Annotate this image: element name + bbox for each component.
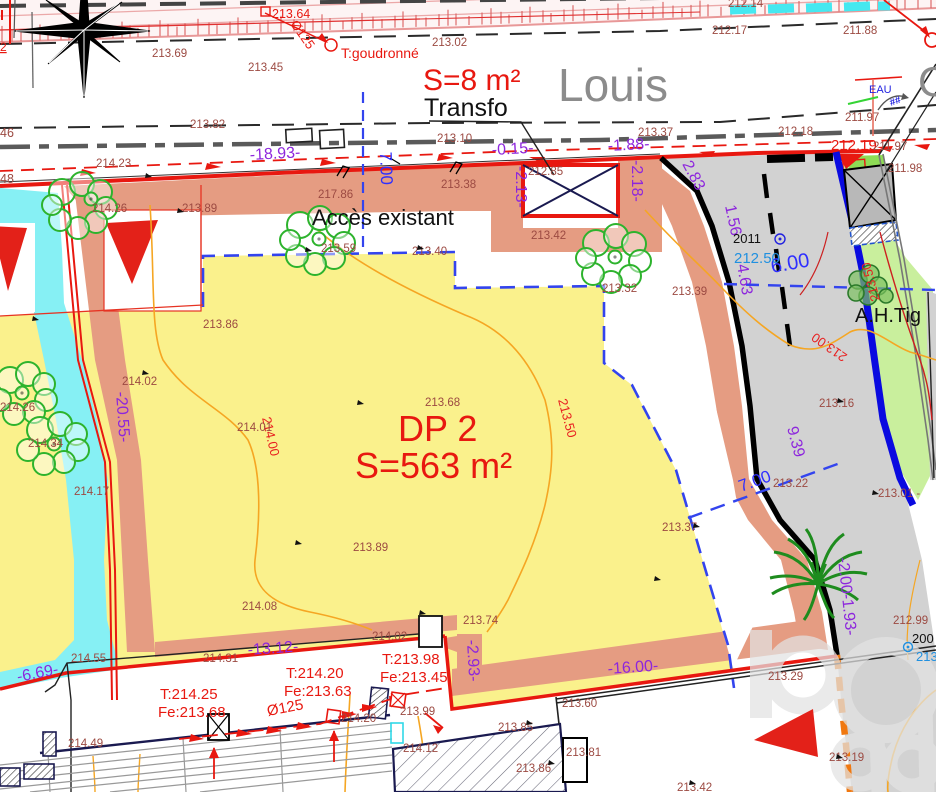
svg-text:212.14: 212.14 bbox=[728, 0, 764, 10]
svg-text:200: 200 bbox=[912, 631, 934, 646]
svg-text:T:214.25: T:214.25 bbox=[160, 686, 218, 703]
svg-text:213.68: 213.68 bbox=[425, 397, 460, 409]
svg-text:214.02: 214.02 bbox=[122, 376, 157, 388]
svg-text:211.97: 211.97 bbox=[873, 141, 907, 153]
svg-text:213.64: 213.64 bbox=[272, 7, 310, 21]
svg-text:213.86: 213.86 bbox=[516, 763, 551, 775]
svg-text:213.60: 213.60 bbox=[562, 698, 597, 710]
svg-text:48: 48 bbox=[0, 172, 14, 186]
svg-text:214.17: 214.17 bbox=[74, 486, 109, 498]
svg-text:Fe:213.68: Fe:213.68 bbox=[158, 704, 226, 721]
svg-text:214.20: 214.20 bbox=[341, 713, 376, 725]
svg-text:S=8 m²: S=8 m² bbox=[423, 64, 521, 97]
svg-text:213.40: 213.40 bbox=[412, 246, 447, 258]
svg-text:-2.93-: -2.93- bbox=[463, 639, 482, 682]
svg-text:213.81: 213.81 bbox=[566, 747, 601, 759]
svg-text:212.17: 212.17 bbox=[712, 25, 747, 37]
svg-text:213.32: 213.32 bbox=[602, 283, 637, 295]
svg-text:T:goudronné: T:goudronné bbox=[341, 45, 419, 61]
svg-text:212.19: 212.19 bbox=[831, 137, 877, 154]
svg-text:7.00: 7.00 bbox=[376, 151, 396, 185]
svg-text:213.29: 213.29 bbox=[768, 671, 803, 683]
svg-text:213.82: 213.82 bbox=[190, 119, 225, 131]
svg-text:214.01: 214.01 bbox=[237, 422, 272, 434]
svg-text:-20.55-: -20.55- bbox=[112, 391, 132, 443]
svg-text:213.99: 213.99 bbox=[400, 706, 435, 718]
svg-text:213.89: 213.89 bbox=[182, 203, 217, 215]
svg-text:Louis: Louis bbox=[558, 59, 668, 111]
svg-text:213.45: 213.45 bbox=[248, 62, 283, 74]
svg-text:-13.12-: -13.12- bbox=[247, 638, 299, 658]
svg-text:-2.13-: -2.13- bbox=[512, 166, 529, 208]
svg-text:-2.18-: -2.18- bbox=[628, 160, 645, 202]
svg-text:213.22: 213.22 bbox=[773, 478, 808, 490]
svg-text:214.08: 214.08 bbox=[242, 601, 277, 613]
svg-text:46: 46 bbox=[0, 126, 14, 140]
svg-text:213.37: 213.37 bbox=[662, 522, 697, 534]
svg-text:213.89: 213.89 bbox=[353, 542, 388, 554]
svg-text:217.86: 217.86 bbox=[318, 189, 353, 201]
svg-text:213.38: 213.38 bbox=[441, 179, 476, 191]
svg-text:-18.93-: -18.93- bbox=[249, 144, 301, 164]
svg-text:2011: 2011 bbox=[733, 231, 761, 246]
svg-text:213.16: 213.16 bbox=[819, 398, 854, 410]
svg-text:212.18: 212.18 bbox=[778, 126, 813, 138]
svg-text:213.86: 213.86 bbox=[203, 319, 238, 331]
svg-text:214.49: 214.49 bbox=[68, 738, 103, 750]
svg-text:-0.15-: -0.15- bbox=[491, 140, 534, 159]
svg-text:213.59: 213.59 bbox=[321, 243, 356, 255]
svg-text:213.74: 213.74 bbox=[463, 615, 499, 627]
svg-text:214.23: 214.23 bbox=[96, 158, 131, 170]
svg-text:DP 2: DP 2 bbox=[398, 408, 477, 449]
svg-text:T:213.98: T:213.98 bbox=[382, 651, 440, 668]
svg-text:213.02: 213.02 bbox=[432, 37, 467, 49]
svg-text:213: 213 bbox=[916, 649, 936, 664]
svg-text:Fe:213.45: Fe:213.45 bbox=[380, 669, 448, 686]
svg-text:212.85: 212.85 bbox=[528, 166, 563, 178]
svg-text:Accès existant: Accès existant bbox=[312, 205, 454, 230]
svg-text:213.19: 213.19 bbox=[829, 752, 864, 764]
svg-text:214.02: 214.02 bbox=[372, 631, 407, 643]
svg-text:214.26: 214.26 bbox=[92, 203, 127, 215]
svg-text:211.97: 211.97 bbox=[845, 112, 879, 124]
svg-text:C: C bbox=[918, 58, 936, 105]
svg-text:211.98: 211.98 bbox=[888, 163, 922, 175]
svg-text:213.10: 213.10 bbox=[437, 133, 472, 145]
svg-text:211.88: 211.88 bbox=[843, 25, 877, 37]
svg-text:214.31: 214.31 bbox=[203, 653, 238, 665]
svg-text:214.12: 214.12 bbox=[403, 743, 438, 755]
svg-text:212.50: 212.50 bbox=[734, 250, 780, 267]
svg-text:A.H.Tig: A.H.Tig bbox=[855, 305, 921, 327]
svg-text:212.99: 212.99 bbox=[893, 615, 928, 627]
svg-text:213.39: 213.39 bbox=[672, 286, 707, 298]
svg-text:2: 2 bbox=[0, 40, 7, 54]
svg-text:213.01 -: 213.01 - bbox=[878, 488, 920, 500]
svg-text:214.26: 214.26 bbox=[0, 402, 35, 414]
svg-text:213.69: 213.69 bbox=[152, 48, 187, 60]
svg-text:214.34: 214.34 bbox=[28, 438, 64, 450]
svg-text:Transfo: Transfo bbox=[424, 94, 508, 122]
svg-text:T:214.20: T:214.20 bbox=[286, 665, 344, 682]
svg-text:213.42: 213.42 bbox=[531, 230, 566, 242]
svg-text:-16.00-: -16.00- bbox=[607, 657, 659, 677]
svg-text:EAU: EAU bbox=[869, 84, 892, 96]
svg-text:213.37: 213.37 bbox=[638, 127, 673, 139]
svg-text:214.55: 214.55 bbox=[71, 653, 106, 665]
svg-text:S=563 m²: S=563 m² bbox=[355, 445, 512, 486]
